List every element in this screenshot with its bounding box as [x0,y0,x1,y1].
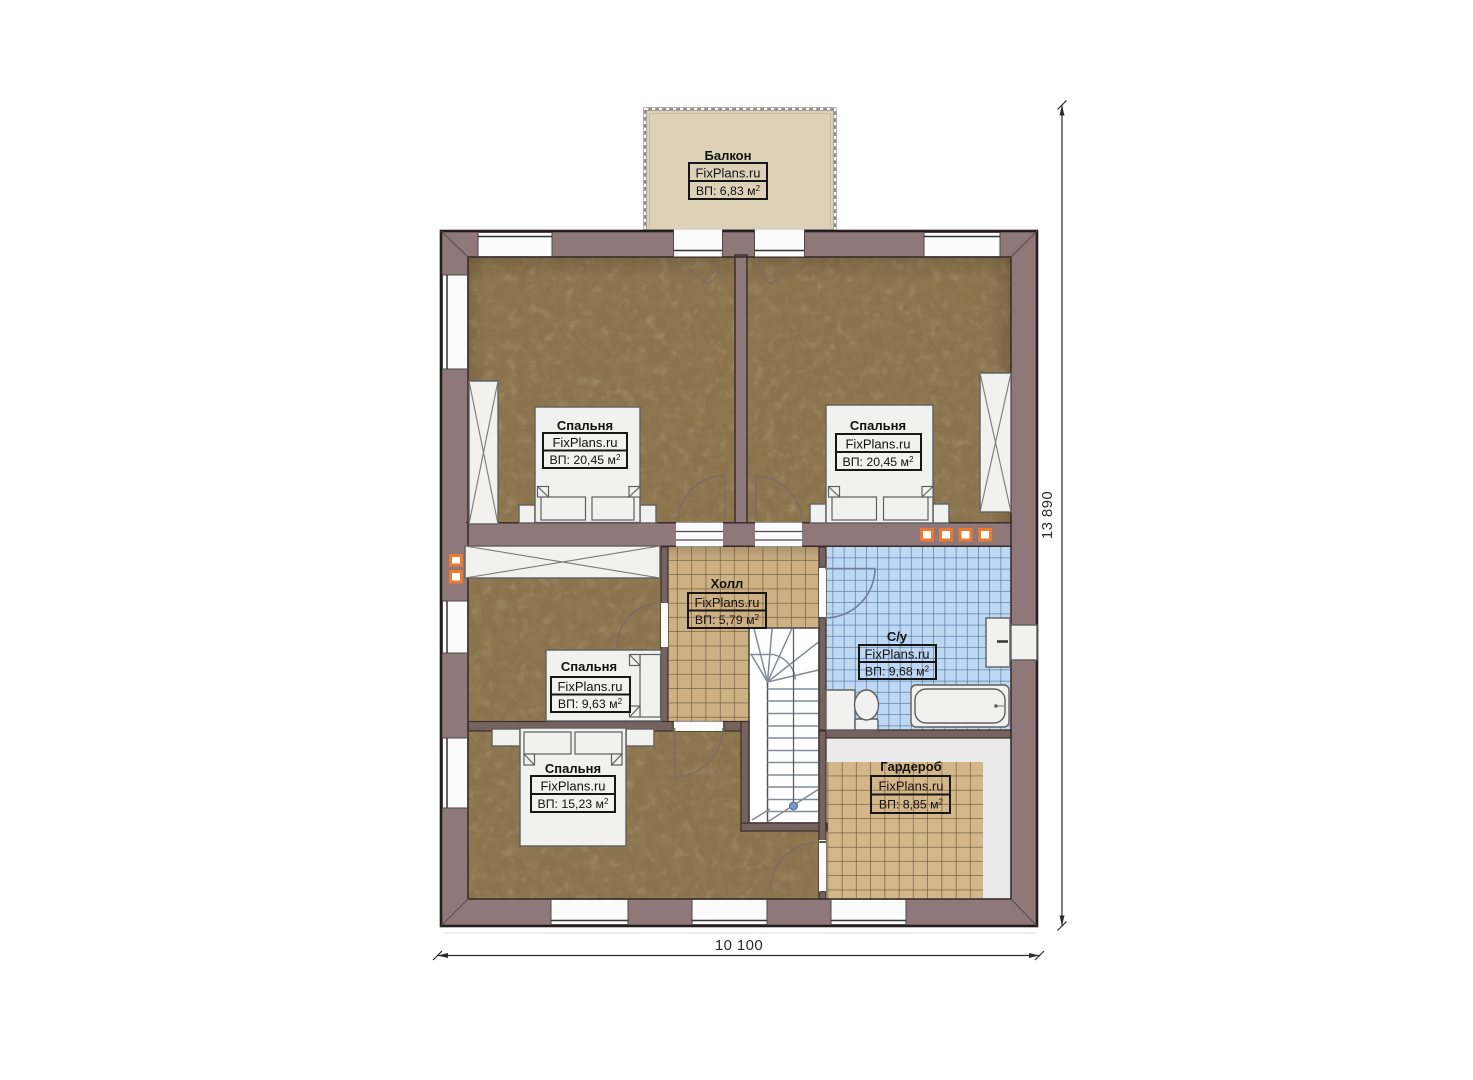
svg-text:ВП: 8,85 м2: ВП: 8,85 м2 [879,798,944,812]
svg-text:Гардероб: Гардероб [880,759,941,774]
svg-text:Спальня: Спальня [545,761,601,776]
svg-text:FixPlans.ru: FixPlans.ru [845,437,910,452]
svg-text:Спальня: Спальня [850,418,906,433]
svg-text:FixPlans.ru: FixPlans.ru [864,647,929,662]
svg-text:Спальня: Спальня [561,659,617,674]
svg-text:С/у: С/у [887,629,908,644]
svg-text:FixPlans.ru: FixPlans.ru [694,595,759,610]
svg-text:13 890: 13 890 [1039,491,1056,539]
svg-text:Спальня: Спальня [557,418,613,433]
svg-text:FixPlans.ru: FixPlans.ru [540,779,605,794]
svg-text:FixPlans.ru: FixPlans.ru [557,679,622,694]
svg-text:FixPlans.ru: FixPlans.ru [878,779,943,794]
svg-text:ВП: 5,79 м2: ВП: 5,79 м2 [695,613,760,627]
svg-text:10 100: 10 100 [715,937,763,954]
svg-text:ВП: 20,45 м2: ВП: 20,45 м2 [550,453,622,467]
svg-text:ВП: 15,23 м2: ВП: 15,23 м2 [538,797,610,811]
svg-text:ВП: 6,83 м2: ВП: 6,83 м2 [696,184,761,198]
svg-text:ВП: 9,63 м2: ВП: 9,63 м2 [558,697,623,711]
svg-text:ВП: 9,68 м2: ВП: 9,68 м2 [865,665,930,679]
svg-text:Балкон: Балкон [705,148,752,163]
svg-text:Холл: Холл [711,576,744,591]
svg-text:FixPlans.ru: FixPlans.ru [552,435,617,450]
svg-text:ВП: 20,45 м2: ВП: 20,45 м2 [843,455,915,469]
svg-text:FixPlans.ru: FixPlans.ru [695,166,760,181]
